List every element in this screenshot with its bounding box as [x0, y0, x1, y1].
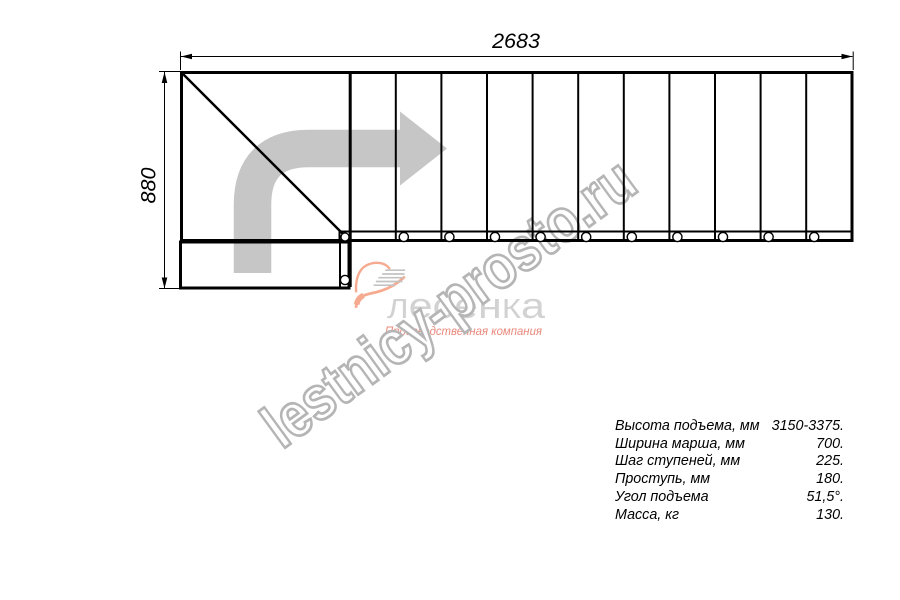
- svg-text:lestnicy-prosto.ru: lestnicy-prosto.ru: [250, 145, 649, 461]
- svg-text:2683: 2683: [491, 29, 540, 53]
- svg-text:880: 880: [137, 168, 161, 204]
